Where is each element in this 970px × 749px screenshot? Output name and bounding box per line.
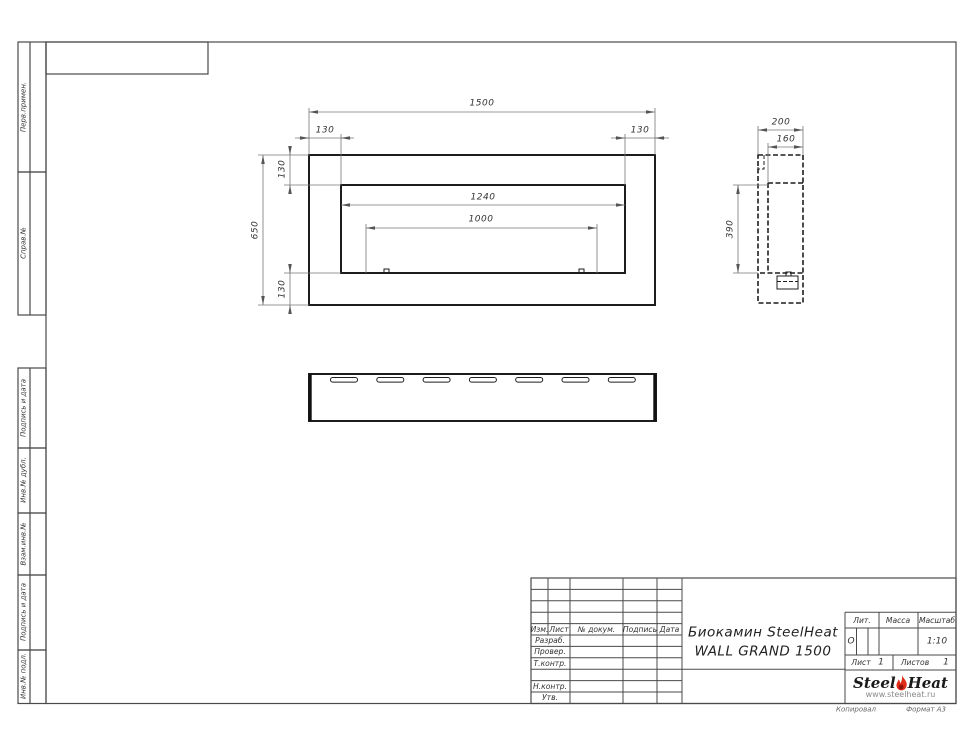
- margin-label-podpis-data-2: Подпись и дата: [21, 583, 28, 641]
- dim-front-top-offset: 130: [279, 160, 288, 179]
- company-logo: Steel Heat www.steelheat.ru: [845, 670, 956, 703]
- margin-label-sprav-no: Справ.№: [21, 227, 28, 259]
- dim-front-right-offset: 130: [631, 127, 650, 136]
- tb-col-date: Дата: [660, 626, 680, 634]
- tb-row-prover: Провер.: [534, 649, 566, 657]
- tb-scale-label: Масштаб: [919, 617, 955, 625]
- dim-side-depth: 200: [772, 119, 791, 128]
- side-view: [733, 126, 803, 303]
- sheet-frame: [18, 42, 956, 704]
- tb-sheet-label: Лист: [851, 659, 870, 667]
- margin-label-podpis-data-1: Подпись и дата: [21, 379, 28, 437]
- dim-front-opening-width: 1240: [471, 194, 496, 203]
- tb-lit-label: Лит.: [853, 617, 870, 625]
- tb-col-sign: Подпись: [623, 626, 657, 634]
- tb-row-tkontr: Т.контр.: [534, 660, 567, 668]
- tb-sheets-label: Листов: [901, 659, 929, 667]
- margin-label-inv-podl: Инв.№ подл.: [21, 653, 28, 699]
- tb-col-izm: Изм.: [531, 626, 549, 634]
- dim-side-opening-height: 390: [727, 220, 736, 239]
- bottom-contour: [309, 374, 656, 421]
- dim-front-height: 650: [252, 221, 261, 240]
- footer-copied-label: Копировал: [836, 707, 876, 714]
- tb-col-list: Лист: [549, 626, 568, 634]
- dim-front-bottom-offset: 130: [279, 280, 288, 299]
- tb-scale-value: 1:10: [927, 637, 947, 646]
- tb-sheet-value: 1: [878, 658, 884, 667]
- front-outer-contour: [309, 155, 655, 305]
- tb-lit-value: О: [847, 637, 854, 646]
- front-view: [258, 108, 669, 313]
- margin-label-vzam-inv: Взам.инв.№: [21, 522, 28, 565]
- footer-format-label: Формат А3: [906, 707, 946, 714]
- side-outer-contour: [758, 155, 803, 303]
- margin-label-inv-dubl: Инв.№ дубл.: [21, 457, 28, 503]
- tb-sheets-value: 1: [943, 658, 949, 667]
- designation-repeat-box: [46, 42, 208, 74]
- document-title-line2: WALL GRAND 1500: [695, 645, 832, 659]
- dim-front-left-offset: 130: [316, 127, 335, 136]
- side-bracket-detail: [758, 155, 764, 169]
- document-title-line1: Биокамин SteelHeat: [688, 626, 838, 640]
- tb-row-nkontr: Н.контр.: [533, 683, 567, 691]
- dim-front-burner-width: 1000: [469, 216, 494, 225]
- drawing-sheet: 1500 130 130 1240 1000 650 130 130 200 1…: [0, 0, 970, 749]
- tb-mass-label: Масса: [886, 617, 910, 625]
- bottom-view: [309, 374, 656, 421]
- dim-side-inner-depth: 160: [777, 136, 796, 145]
- tb-row-razrab: Разраб.: [535, 637, 565, 645]
- logo-website: www.steelheat.ru: [866, 690, 936, 699]
- vent-slots: [331, 378, 636, 383]
- dim-front-width: 1500: [470, 100, 495, 109]
- margin-label-perv-primen: Перв.примен.: [21, 82, 28, 132]
- burner-block: [777, 276, 798, 289]
- tb-row-utv: Утв.: [542, 694, 558, 702]
- tb-col-doc: № докум.: [578, 626, 615, 634]
